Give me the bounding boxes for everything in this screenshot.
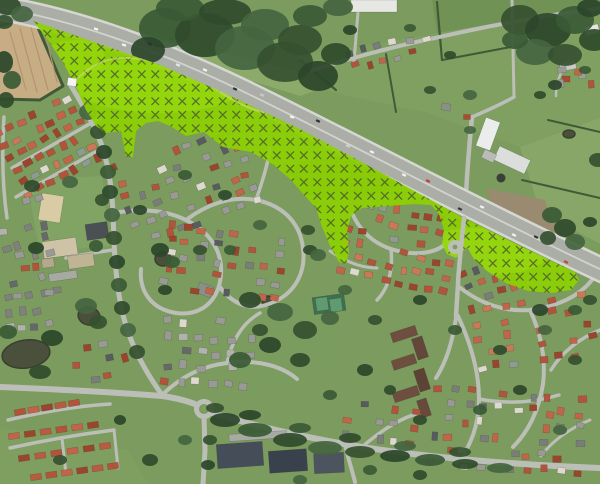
aerial-map-svg[interactable]	[0, 0, 600, 484]
map-viewport[interactable]	[0, 0, 600, 484]
